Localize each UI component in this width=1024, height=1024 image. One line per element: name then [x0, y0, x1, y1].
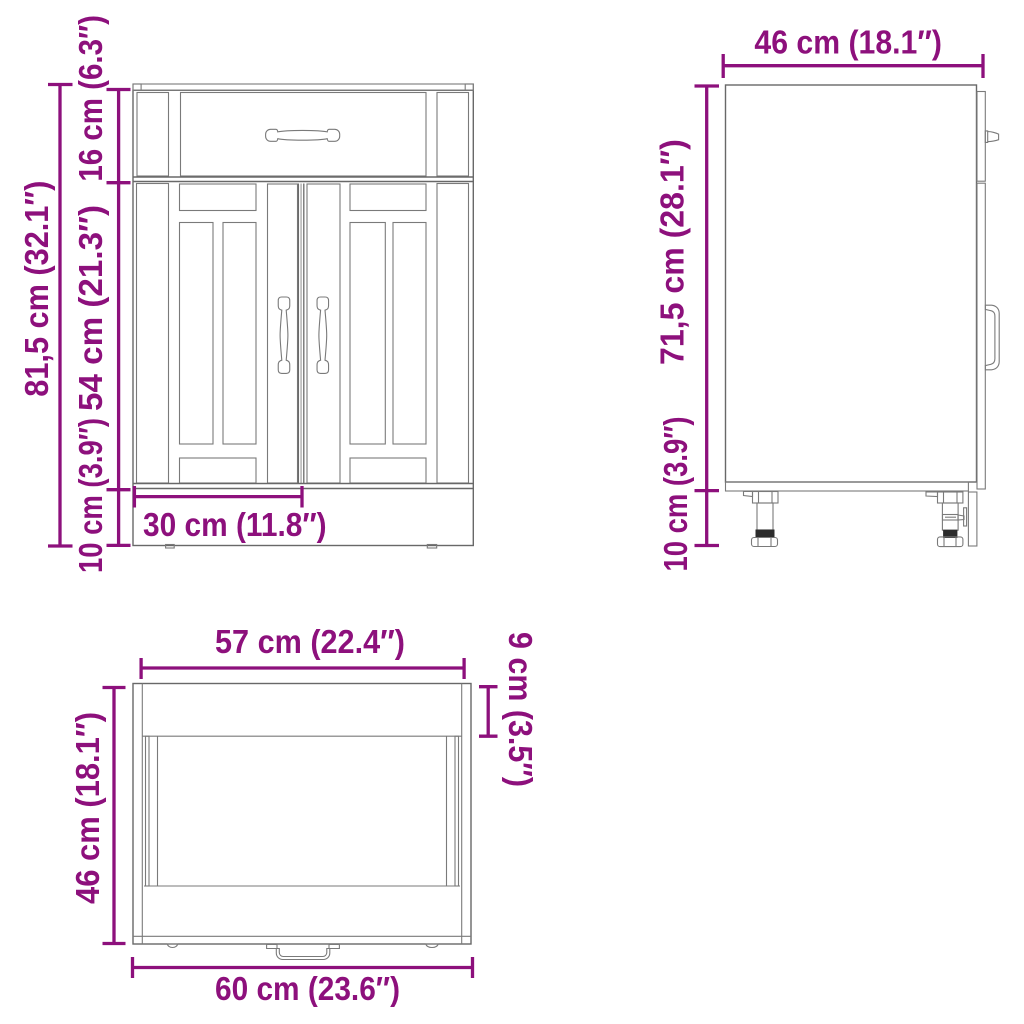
svg-text:46 cm (18.1″): 46 cm (18.1″) [70, 712, 107, 904]
svg-text:10 cm (3.9″): 10 cm (3.9″) [73, 418, 110, 573]
svg-text:30 cm (11.8″): 30 cm (11.8″) [143, 507, 327, 544]
svg-text:46 cm (18.1″): 46 cm (18.1″) [754, 25, 942, 62]
svg-text:60 cm (23.6″): 60 cm (23.6″) [215, 971, 400, 1008]
svg-text:16 cm (6.3″): 16 cm (6.3″) [73, 15, 110, 182]
svg-text:9 cm (3.5″): 9 cm (3.5″) [501, 632, 538, 787]
svg-text:71,5 cm (28.1″): 71,5 cm (28.1″) [655, 139, 692, 365]
svg-text:10 cm (3.9″): 10 cm (3.9″) [658, 417, 695, 572]
svg-text:81,5 cm (32.1″): 81,5 cm (32.1″) [19, 181, 56, 397]
svg-text:54 cm (21.3″): 54 cm (21.3″) [73, 205, 110, 411]
svg-text:57 cm (22.4″): 57 cm (22.4″) [215, 624, 405, 661]
